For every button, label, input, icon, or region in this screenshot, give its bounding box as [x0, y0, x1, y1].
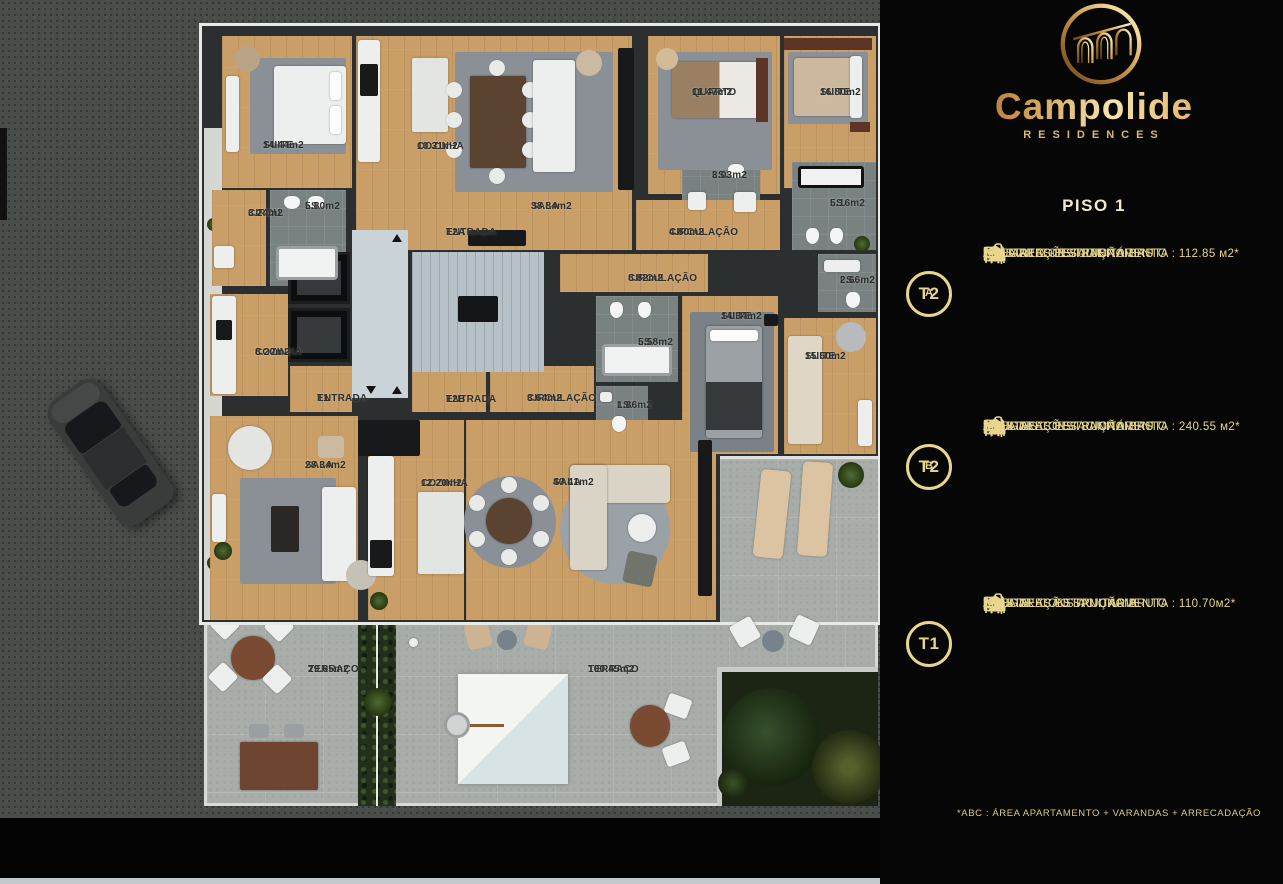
- bench: [850, 122, 870, 132]
- unit-badge-t1: T1: [906, 621, 952, 667]
- unit-badge-t2b: T2 B: [906, 444, 952, 490]
- badge-sublabel: A: [925, 289, 933, 299]
- pillow: [330, 72, 341, 100]
- round-dining-table: [228, 426, 272, 470]
- badge-label: T1: [919, 636, 940, 651]
- bed-throw: [706, 382, 762, 430]
- room-entrada-t1: [290, 366, 352, 412]
- chair: [489, 60, 505, 76]
- spec-text: 2 LUGARES ESTACIONAMENTO: [983, 598, 1167, 610]
- pillow: [710, 330, 758, 341]
- toilet: [610, 302, 623, 318]
- side-table: [497, 630, 517, 650]
- wardrobe: [784, 38, 872, 50]
- round-dining-table: [486, 498, 532, 544]
- palm-plant: [364, 688, 392, 716]
- sofa: [533, 60, 575, 172]
- unit-block-t1: T1 ÁREA DE CONSTRUÇÃO BRUTA : 110.70м2*1…: [880, 593, 1283, 723]
- coffee-table: [271, 506, 299, 552]
- bush: [718, 768, 748, 798]
- palm-tree: [812, 730, 886, 804]
- side-table: [762, 630, 784, 652]
- dresser: [226, 76, 239, 152]
- room-circu-324: [212, 190, 266, 286]
- bidet: [638, 302, 651, 318]
- sink: [600, 392, 612, 402]
- bathtub: [798, 166, 864, 188]
- armchair: [576, 50, 602, 76]
- console-table: [212, 494, 226, 542]
- brochure-page: SUITE14.44m2COZINHA10.31m2SALA38.84m2QUA…: [0, 0, 1283, 884]
- armchair: [836, 322, 866, 352]
- spec-text: 2 LUGARES ESTACIONAMENTO: [983, 248, 1167, 260]
- chair: [501, 549, 517, 565]
- vanity: [824, 260, 860, 272]
- bathtub: [276, 246, 338, 280]
- pillow: [330, 106, 341, 134]
- badge-sublabel: B: [925, 462, 933, 472]
- footnote: *ABC : ÁREA APARTAMENTO + VARANDAS + ARR…: [944, 808, 1274, 819]
- brand-tagline: RESIDENCES: [924, 129, 1264, 141]
- toilet: [846, 292, 860, 308]
- headboard: [756, 58, 768, 122]
- fire-pit: [444, 712, 470, 738]
- fire-pit-arm: [470, 724, 504, 727]
- chair: [446, 112, 462, 128]
- unit-block-t2a: T2 A ÁREA DE CONSTRUÇÃO BRUTA : 112.85 м…: [880, 243, 1283, 373]
- media-wall: [698, 440, 712, 596]
- desk: [858, 400, 872, 446]
- chair: [469, 531, 485, 547]
- nightstand: [764, 314, 778, 326]
- coffee-table: [628, 514, 656, 542]
- outdoor-table: [240, 742, 318, 790]
- unit-block-t2b: T2 B ÁREA DE CONSTRUÇÃO BRUTA : 240.55 м…: [880, 416, 1283, 546]
- kitchen-island: [418, 492, 464, 574]
- chair: [469, 495, 485, 511]
- curb-shadow: [0, 128, 7, 220]
- chair: [489, 168, 505, 184]
- core-corridor: [352, 230, 408, 398]
- armchair: [318, 436, 344, 458]
- kitchen-counter: [212, 296, 236, 394]
- bidet: [830, 228, 843, 244]
- plant: [370, 592, 388, 610]
- plant: [838, 462, 864, 488]
- washer: [688, 192, 706, 210]
- sink: [284, 196, 300, 209]
- direction-arrow: [392, 234, 402, 242]
- ball: [409, 638, 418, 647]
- kitchen-island: [412, 58, 448, 132]
- armchair: [234, 46, 260, 72]
- room-circulacao-364: [490, 366, 594, 412]
- appliance-wall: [358, 420, 420, 456]
- cooktop: [360, 64, 378, 96]
- chair: [446, 82, 462, 98]
- floor-title: PISO 1: [924, 196, 1264, 216]
- pergola-canopy: [458, 674, 568, 784]
- toilet: [806, 228, 819, 244]
- cooktop: [370, 540, 392, 568]
- unit-badge-t2a: T2 A: [906, 271, 952, 317]
- chair: [284, 724, 304, 738]
- direction-arrow: [392, 386, 402, 394]
- room-circulacao-480: [636, 200, 780, 250]
- dining-table: [470, 76, 526, 168]
- stair-landing: [458, 296, 498, 322]
- washer: [214, 246, 234, 268]
- pouf: [656, 48, 678, 70]
- brand-name: Campolide: [924, 86, 1264, 128]
- shower-tray: [734, 192, 756, 212]
- kitchen-counter: [358, 40, 380, 162]
- bathtub: [602, 344, 672, 376]
- spec-text: 2 LUGARES ESTACIONAMENTO: [983, 421, 1167, 433]
- chair: [533, 531, 549, 547]
- media-wall: [618, 48, 634, 190]
- direction-arrow: [366, 386, 376, 394]
- chair: [249, 724, 269, 738]
- plant: [214, 542, 232, 560]
- sink: [216, 320, 232, 340]
- chair: [501, 477, 517, 493]
- chair: [533, 495, 549, 511]
- info-panel: Campolide RESIDENCES PISO 1 T2 A ÁREA DE…: [880, 0, 1283, 884]
- aqueduct-logo-icon: [1058, 0, 1144, 86]
- plant: [854, 236, 870, 252]
- toilet: [612, 416, 626, 432]
